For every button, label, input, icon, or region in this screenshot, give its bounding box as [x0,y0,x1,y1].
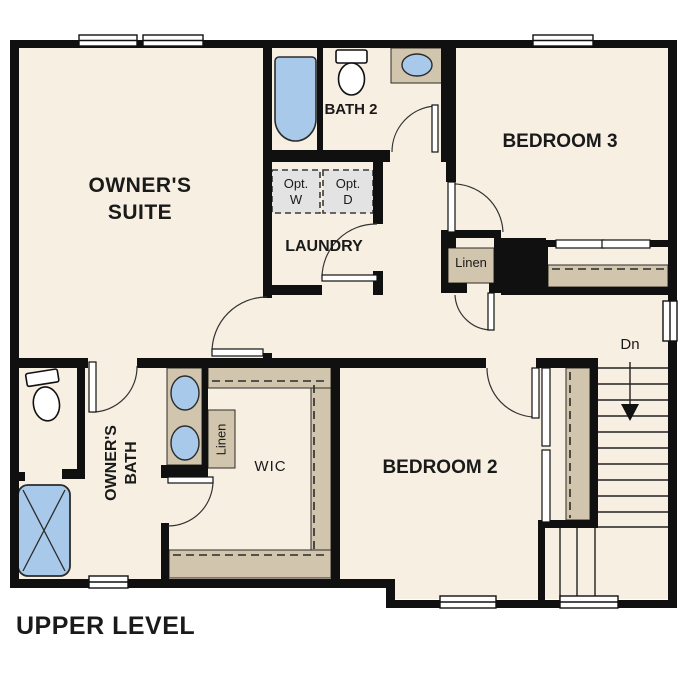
bath2-sink [402,54,432,76]
bath2-toilet [336,50,367,95]
bath2-label: BATH 2 [322,100,380,119]
window [663,301,677,341]
owners-suite-label: OWNER'S SUITE [65,172,215,226]
window [89,576,128,588]
opt-washer-text: Opt. W [279,176,313,208]
wic-label: WIC [238,458,303,475]
wic-shelf-top [208,367,331,388]
window [440,596,496,608]
stairs-down-label: Dn [613,336,647,353]
opt-dryer-text: Opt. D [331,176,365,208]
linen-lower-label: Linen [201,408,241,470]
linen-lower-text: Linen [214,423,229,455]
bathtub [275,57,316,141]
window [79,35,137,46]
vanity-sink-1 [171,376,199,410]
page-title: UPPER LEVEL [16,612,195,641]
bedroom2-label: BEDROOM 2 [360,457,520,479]
laundry-label: LAUNDRY [270,238,378,256]
window [143,35,203,46]
vanity-sink-2 [171,426,199,460]
opt-washer-label: Opt. W [272,170,320,213]
window [533,35,593,46]
linen-upper-label: Linen [448,255,494,270]
opt-dryer-label: Opt. D [323,170,373,213]
floor-plan: OWNER'S SUITE BEDROOM 3 BEDROOM 2 BATH 2… [0,0,687,687]
owners-bath-label: OWNER'S BATH [72,390,172,535]
shower [18,485,70,576]
owners-bath-text: OWNER'S BATH [102,413,142,513]
window [560,596,618,608]
bedroom3-label: BEDROOM 3 [480,131,640,153]
